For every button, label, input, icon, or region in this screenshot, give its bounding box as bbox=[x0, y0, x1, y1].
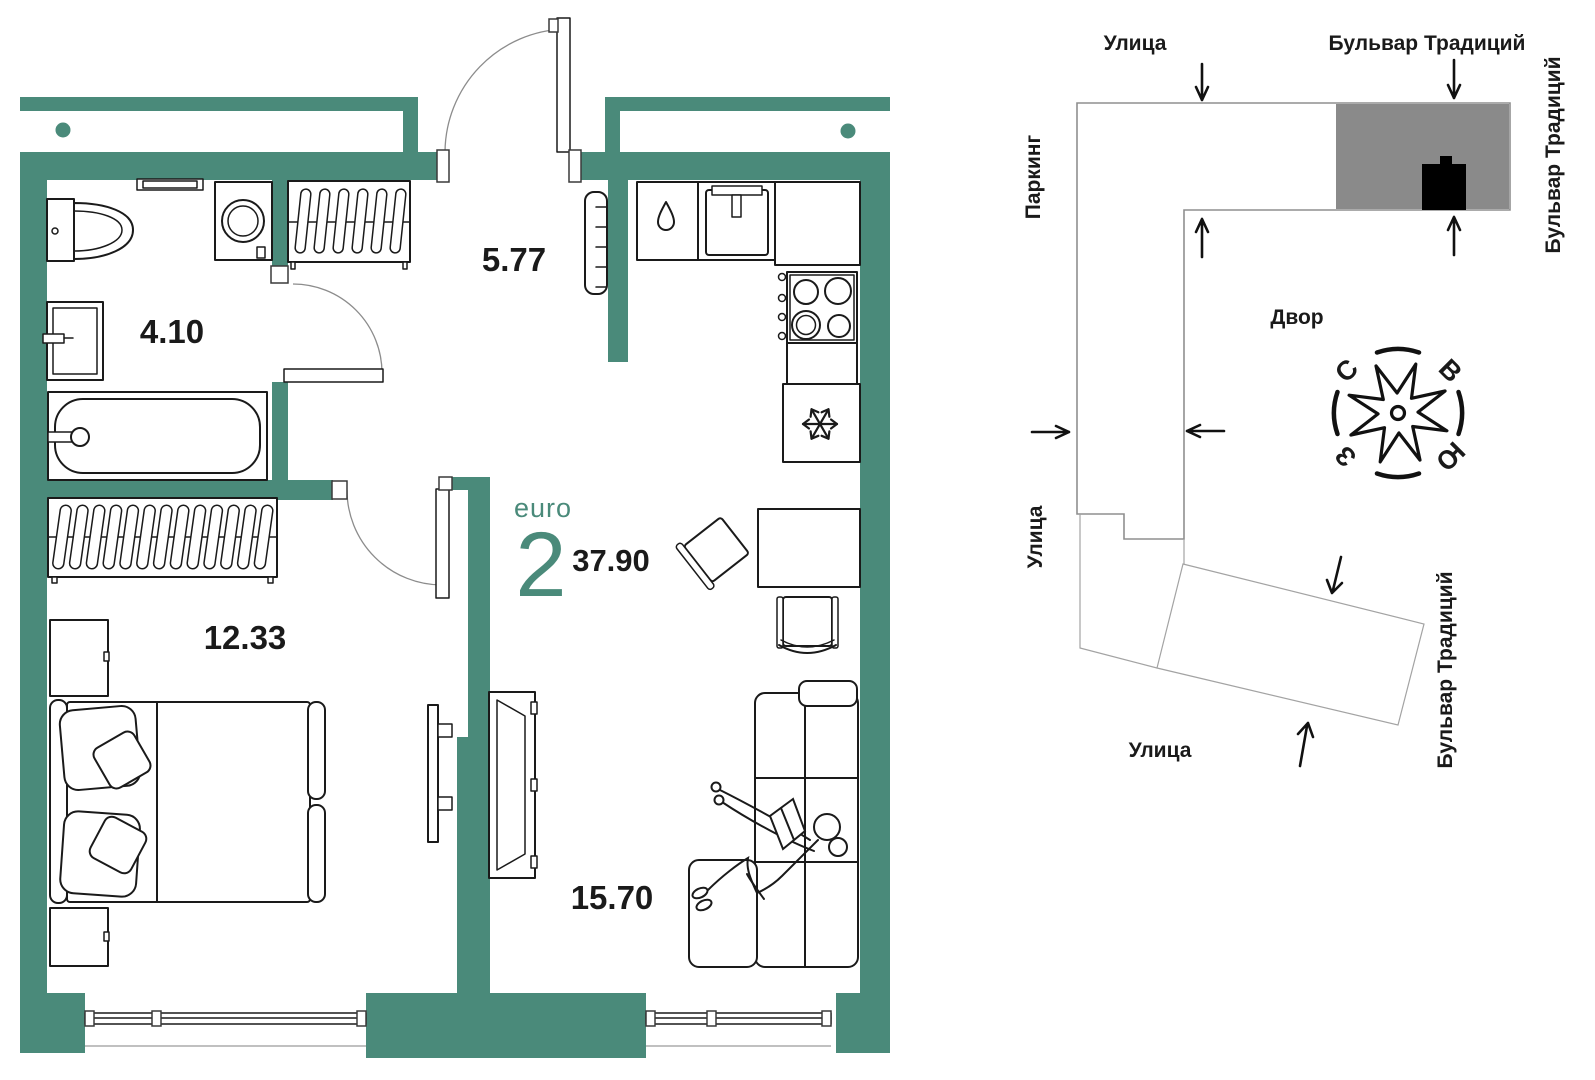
washing-machine bbox=[215, 182, 272, 260]
parking-label: Паркинг bbox=[1022, 135, 1045, 220]
courtyard-label: Двор bbox=[1270, 306, 1323, 329]
boulevard-label-bottom-right: Бульвар Традиций bbox=[1434, 572, 1457, 769]
bed bbox=[50, 700, 325, 903]
street-label-left: Улица bbox=[1024, 505, 1047, 568]
compass-south: Ю bbox=[1430, 436, 1471, 477]
current-building-marker bbox=[1422, 164, 1466, 210]
street-label-bottom: Улица bbox=[1129, 739, 1192, 762]
neighbor-building-outline bbox=[1157, 564, 1424, 725]
dining-table bbox=[758, 509, 860, 587]
compass-north: С bbox=[1329, 353, 1364, 388]
wardrobe bbox=[48, 498, 277, 583]
bedroom-window bbox=[85, 1011, 366, 1046]
toilet bbox=[47, 199, 133, 261]
shelf bbox=[137, 179, 203, 190]
compass-west: З bbox=[1329, 440, 1362, 473]
boulevard-label-top: Бульвар Традиций bbox=[1329, 32, 1526, 55]
living-window bbox=[646, 1011, 831, 1046]
boulevard-label-right: Бульвар Традиций bbox=[1542, 57, 1565, 254]
corridor-dot-left bbox=[56, 123, 71, 138]
dining-chair bbox=[777, 597, 838, 653]
compass-rose: С В З Ю bbox=[1329, 349, 1471, 477]
bathroom-door bbox=[271, 266, 383, 382]
coat-rack bbox=[288, 181, 410, 269]
hallway-radiator bbox=[585, 192, 607, 294]
bedroom-door-leaf bbox=[436, 489, 449, 598]
bathroom-door-leaf bbox=[284, 369, 383, 382]
living-area-label: 15.70 bbox=[571, 879, 654, 916]
entrance-door-leaf bbox=[557, 18, 570, 152]
bathroom-sink bbox=[43, 302, 103, 380]
stove bbox=[779, 272, 858, 343]
nightstand-top bbox=[50, 620, 109, 696]
nightstand-bottom bbox=[50, 908, 109, 966]
bedroom-tv bbox=[428, 705, 452, 842]
compass-east: В bbox=[1433, 353, 1468, 388]
rooms-count: 2 bbox=[515, 514, 566, 616]
bedroom-area-label: 12.33 bbox=[204, 619, 287, 656]
living-tv bbox=[489, 692, 537, 878]
entrance-door bbox=[437, 18, 581, 182]
bedroom-living-partition bbox=[450, 477, 490, 993]
total-area: 37.90 bbox=[572, 543, 650, 578]
bathtub bbox=[48, 392, 267, 480]
dining-chair-tilted bbox=[675, 513, 752, 590]
floor-plan-svg: 5.77 4.10 12.33 15.70 euro 2 37.90 bbox=[0, 0, 1595, 1080]
floor-plan-page: 5.77 4.10 12.33 15.70 euro 2 37.90 bbox=[0, 0, 1595, 1080]
bathroom-area-label: 4.10 bbox=[140, 313, 204, 350]
hallway-area-label: 5.77 bbox=[482, 241, 546, 278]
site-plan: С В З Ю Улица Бульвар Традиций Бульвар Т… bbox=[1022, 32, 1565, 768]
corridor-dot-right bbox=[841, 124, 856, 139]
fridge bbox=[783, 384, 860, 462]
street-label-top: Улица bbox=[1104, 32, 1167, 55]
bedroom-door bbox=[332, 477, 452, 598]
